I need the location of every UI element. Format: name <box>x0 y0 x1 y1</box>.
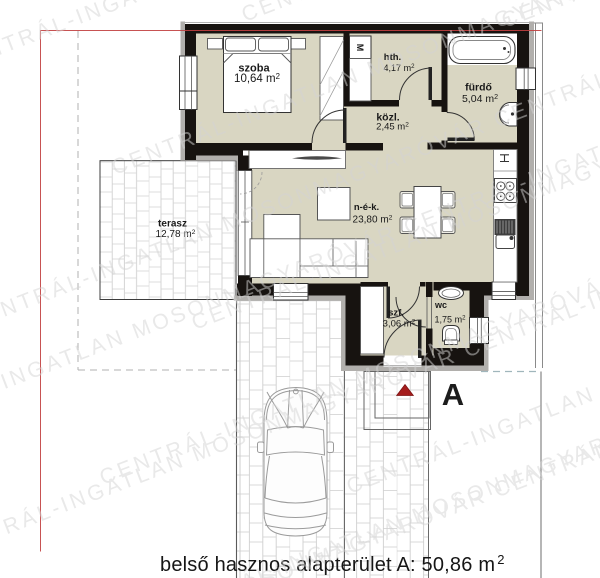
svg-text:5,04 m2: 5,04 m2 <box>462 93 498 105</box>
svg-text:M: M <box>355 44 365 52</box>
svg-text:A: A <box>442 377 464 412</box>
svg-text:wc: wc <box>434 300 447 310</box>
svg-text:szf.: szf. <box>388 308 404 319</box>
svg-text:n-é-k.: n-é-k. <box>354 202 379 213</box>
svg-text:fürdő: fürdő <box>465 82 492 94</box>
svg-text:10,64 m2: 10,64 m2 <box>234 72 280 85</box>
svg-text:2,45 m2: 2,45 m2 <box>376 122 409 133</box>
svg-text:1,75 m2: 1,75 m2 <box>435 315 467 325</box>
svg-text:3,06 m2: 3,06 m2 <box>383 319 416 330</box>
